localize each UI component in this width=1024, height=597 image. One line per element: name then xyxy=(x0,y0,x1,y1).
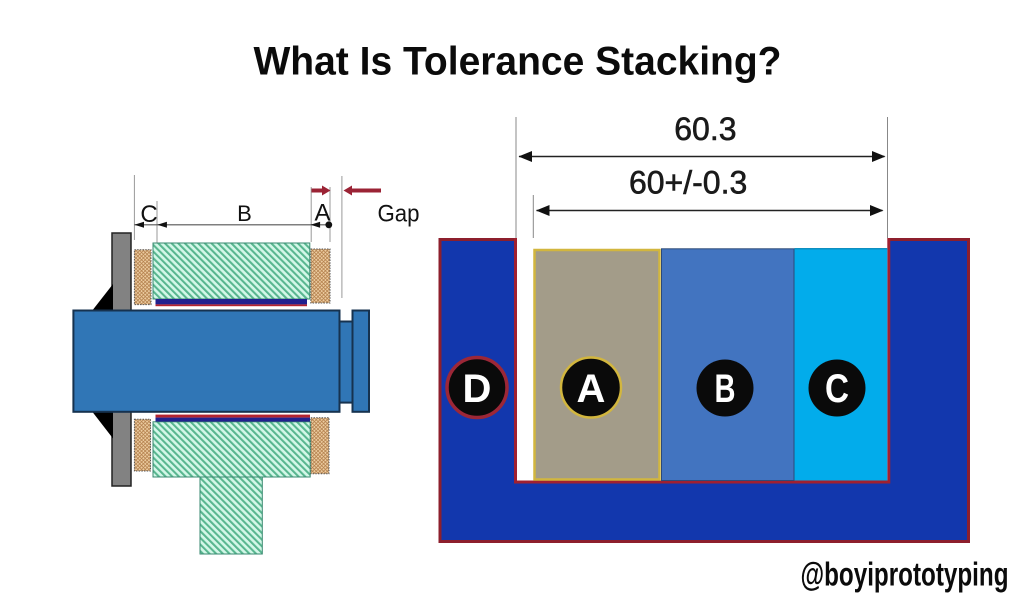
svg-text:60+/-0.3: 60+/-0.3 xyxy=(629,165,747,201)
svg-text:C: C xyxy=(140,201,157,228)
svg-text:B: B xyxy=(715,367,736,411)
svg-text:B: B xyxy=(237,201,252,226)
svg-text:@boyiprototyping: @boyiprototyping xyxy=(801,556,1009,593)
svg-text:D: D xyxy=(463,367,492,411)
svg-text:Gap: Gap xyxy=(378,201,420,228)
svg-text:What Is Tolerance Stacking?: What Is Tolerance Stacking? xyxy=(254,40,782,84)
svg-text:C: C xyxy=(825,367,849,411)
svg-text:60.3: 60.3 xyxy=(674,111,736,147)
svg-text:A: A xyxy=(314,200,330,227)
svg-text:A: A xyxy=(577,367,606,411)
